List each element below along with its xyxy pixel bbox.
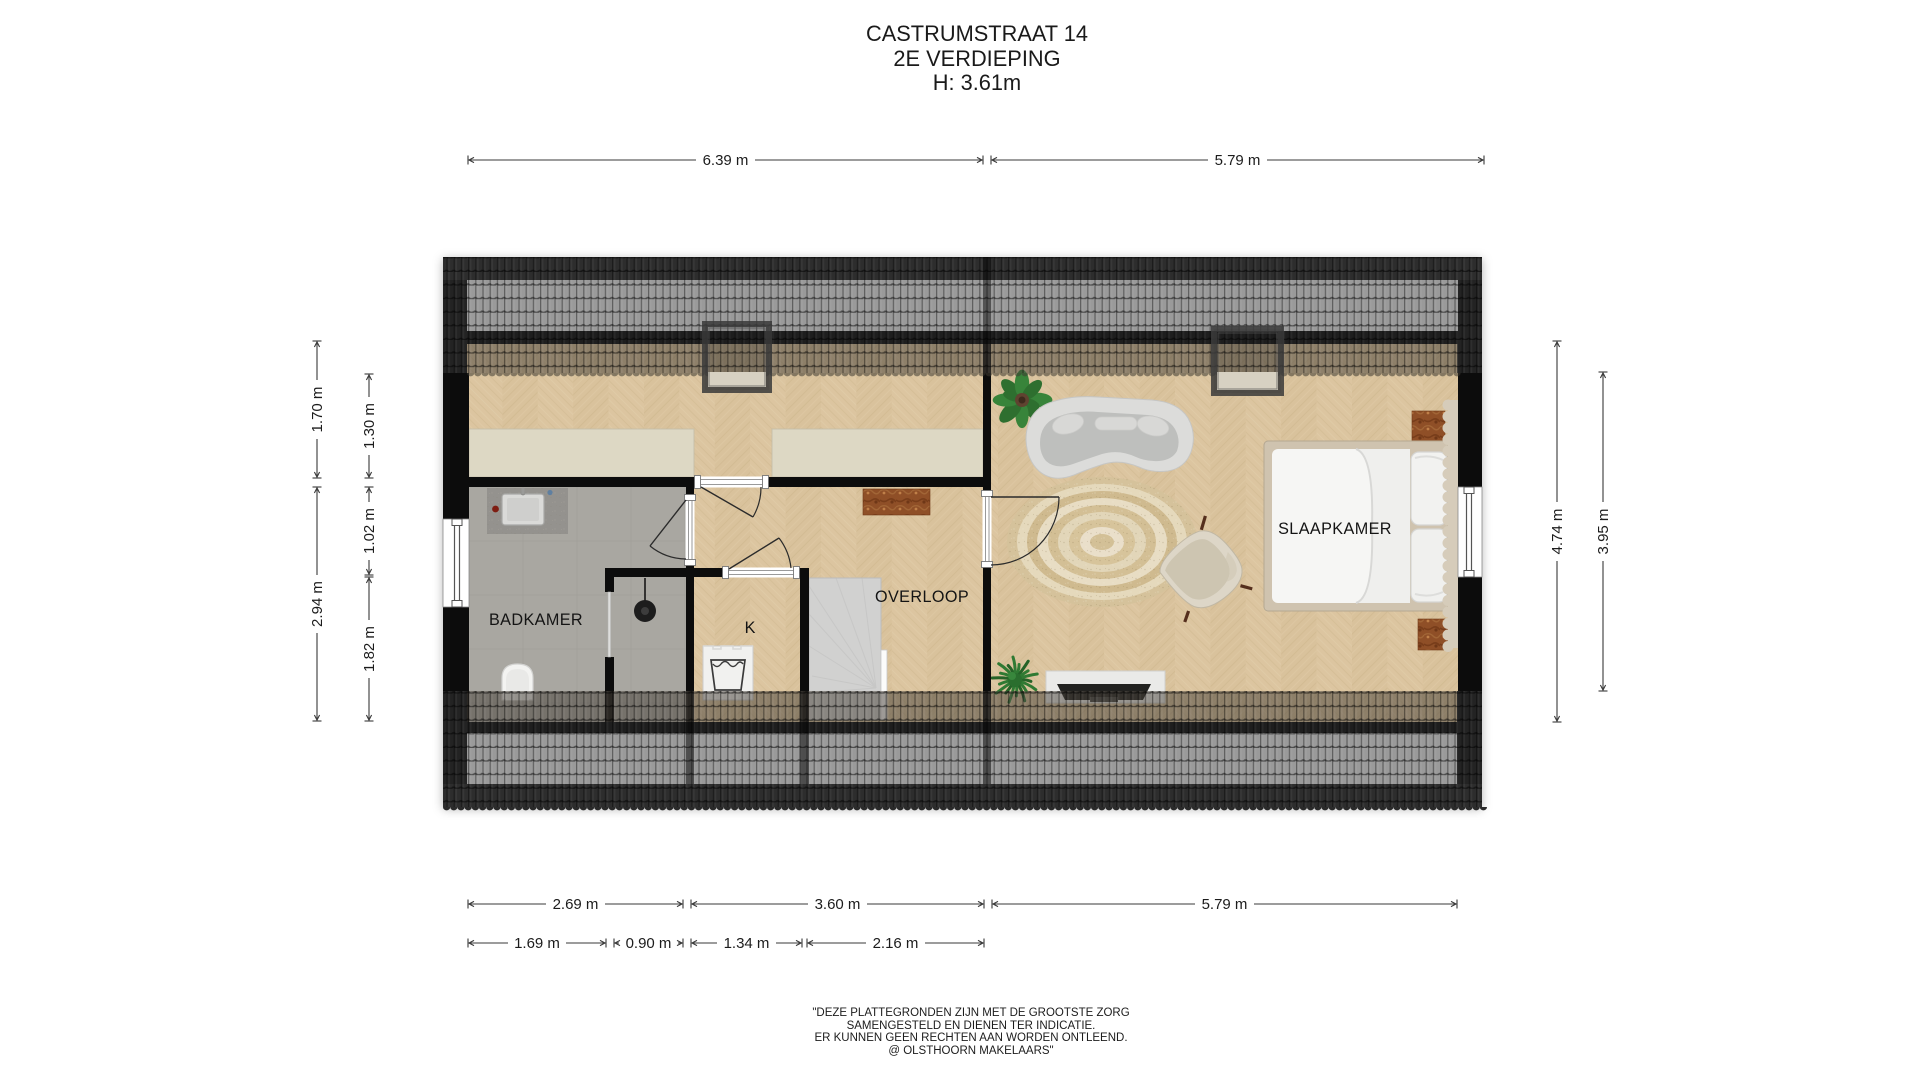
svg-text:1.69 m: 1.69 m — [514, 935, 560, 952]
svg-text:"DEZE PLATTEGRONDEN ZIJN MET D: "DEZE PLATTEGRONDEN ZIJN MET DE GROOTSTE… — [812, 1007, 1129, 1019]
svg-text:3.60 m: 3.60 m — [815, 896, 861, 913]
svg-text:SLAAPKAMER: SLAAPKAMER — [1278, 520, 1392, 538]
svg-text:1.70 m: 1.70 m — [309, 387, 326, 433]
svg-text:1.34 m: 1.34 m — [724, 935, 770, 952]
svg-text:H: 3.61m: H: 3.61m — [933, 70, 1021, 95]
svg-text:1.82 m: 1.82 m — [361, 626, 378, 672]
svg-text:2.69 m: 2.69 m — [553, 896, 599, 913]
svg-text:CASTRUMSTRAAT 14: CASTRUMSTRAAT 14 — [866, 21, 1088, 46]
svg-text:5.79 m: 5.79 m — [1202, 896, 1248, 913]
svg-text:2.16 m: 2.16 m — [873, 935, 919, 952]
svg-text:5.79 m: 5.79 m — [1215, 152, 1261, 169]
svg-text:3.95 m: 3.95 m — [1595, 509, 1612, 555]
svg-text:1.02 m: 1.02 m — [361, 508, 378, 554]
svg-text:1.30 m: 1.30 m — [361, 403, 378, 449]
svg-text:SAMENGESTELD EN DIENEN TER IND: SAMENGESTELD EN DIENEN TER INDICATIE. — [847, 1020, 1096, 1032]
svg-text:2.94 m: 2.94 m — [309, 581, 326, 627]
svg-text:4.74 m: 4.74 m — [1549, 509, 1566, 555]
svg-text:BADKAMER: BADKAMER — [489, 611, 583, 629]
svg-text:0.90 m: 0.90 m — [626, 935, 672, 952]
svg-text:K: K — [745, 619, 756, 637]
svg-text:@ OLSTHOORN MAKELAARS": @ OLSTHOORN MAKELAARS" — [888, 1045, 1053, 1057]
svg-text:6.39 m: 6.39 m — [703, 152, 749, 169]
svg-text:ER KUNNEN GEEN RECHTEN AAN WOR: ER KUNNEN GEEN RECHTEN AAN WORDEN ONTLEE… — [814, 1032, 1127, 1044]
svg-text:2E VERDIEPING: 2E VERDIEPING — [893, 46, 1060, 71]
svg-text:OVERLOOP: OVERLOOP — [875, 588, 969, 606]
